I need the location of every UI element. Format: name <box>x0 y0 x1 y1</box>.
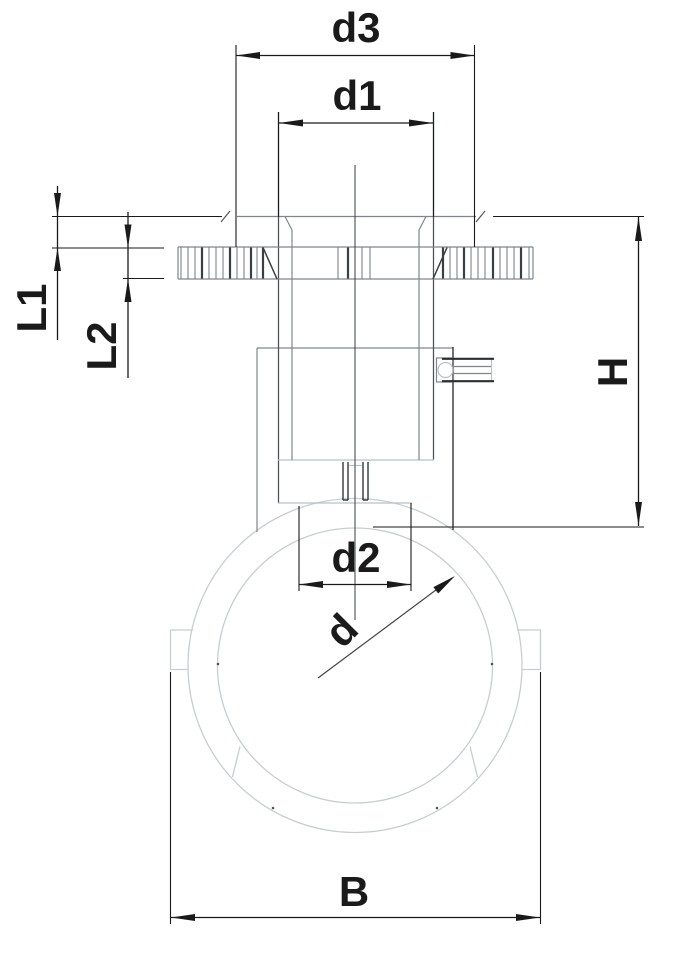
dimension-d1: d1 <box>279 72 434 217</box>
break-slash <box>221 211 230 222</box>
dimension-L1: L1 <box>8 186 61 340</box>
dim-label-L1: L1 <box>8 283 55 332</box>
dim-label-d3: d3 <box>331 4 380 51</box>
witness-dot <box>436 807 439 810</box>
left-split-line <box>233 747 241 778</box>
arrowhead <box>125 279 132 303</box>
arrowhead <box>451 52 475 59</box>
dimension-L2: L2 <box>78 212 132 378</box>
dim-label-B: B <box>339 868 369 915</box>
arrowhead <box>516 914 540 921</box>
arrowhead <box>433 576 455 594</box>
arrowhead <box>54 248 61 272</box>
terminal-base <box>437 358 454 382</box>
rib-ticks-left <box>181 248 263 279</box>
arrowhead <box>236 52 260 59</box>
arrowhead <box>171 914 195 921</box>
arrowhead <box>387 581 411 588</box>
dim-label-d: d <box>316 605 367 656</box>
saddle-fitting-drawing: d3 d1 L1 L2 H <box>0 0 696 953</box>
arrowhead <box>125 225 132 249</box>
dimension-d: d <box>316 576 455 678</box>
right-split-line <box>470 747 478 778</box>
rib-ticks-center <box>338 248 370 279</box>
outlet-spigot <box>237 217 476 461</box>
fusion-terminal <box>437 358 495 382</box>
technical-drawing-page: d3 d1 L1 L2 H <box>0 0 696 953</box>
dim-label-d1: d1 <box>332 72 381 119</box>
band-gusset-left <box>263 248 277 280</box>
arrowhead <box>409 120 433 127</box>
arrowhead <box>54 193 61 217</box>
rib-ticks-right <box>443 248 529 279</box>
arrowhead <box>635 502 642 526</box>
break-slash <box>476 211 485 222</box>
arrowhead <box>635 217 642 241</box>
arrowhead <box>279 120 303 127</box>
witness-dot <box>272 807 275 810</box>
arrowhead <box>299 581 323 588</box>
dimension-H: H <box>373 217 644 527</box>
dim-label-d2: d2 <box>331 534 380 581</box>
band-gusset-right <box>433 248 447 280</box>
spigot-chamfer-right <box>419 217 426 231</box>
witness-dot <box>217 663 220 666</box>
spigot-chamfer-left <box>285 217 292 231</box>
dim-label-L2: L2 <box>78 321 125 370</box>
left-tab <box>171 630 194 670</box>
right-tab <box>517 630 541 670</box>
terminal-socket <box>438 363 453 378</box>
witness-dot <box>491 663 494 666</box>
dim-label-H: H <box>589 357 636 387</box>
